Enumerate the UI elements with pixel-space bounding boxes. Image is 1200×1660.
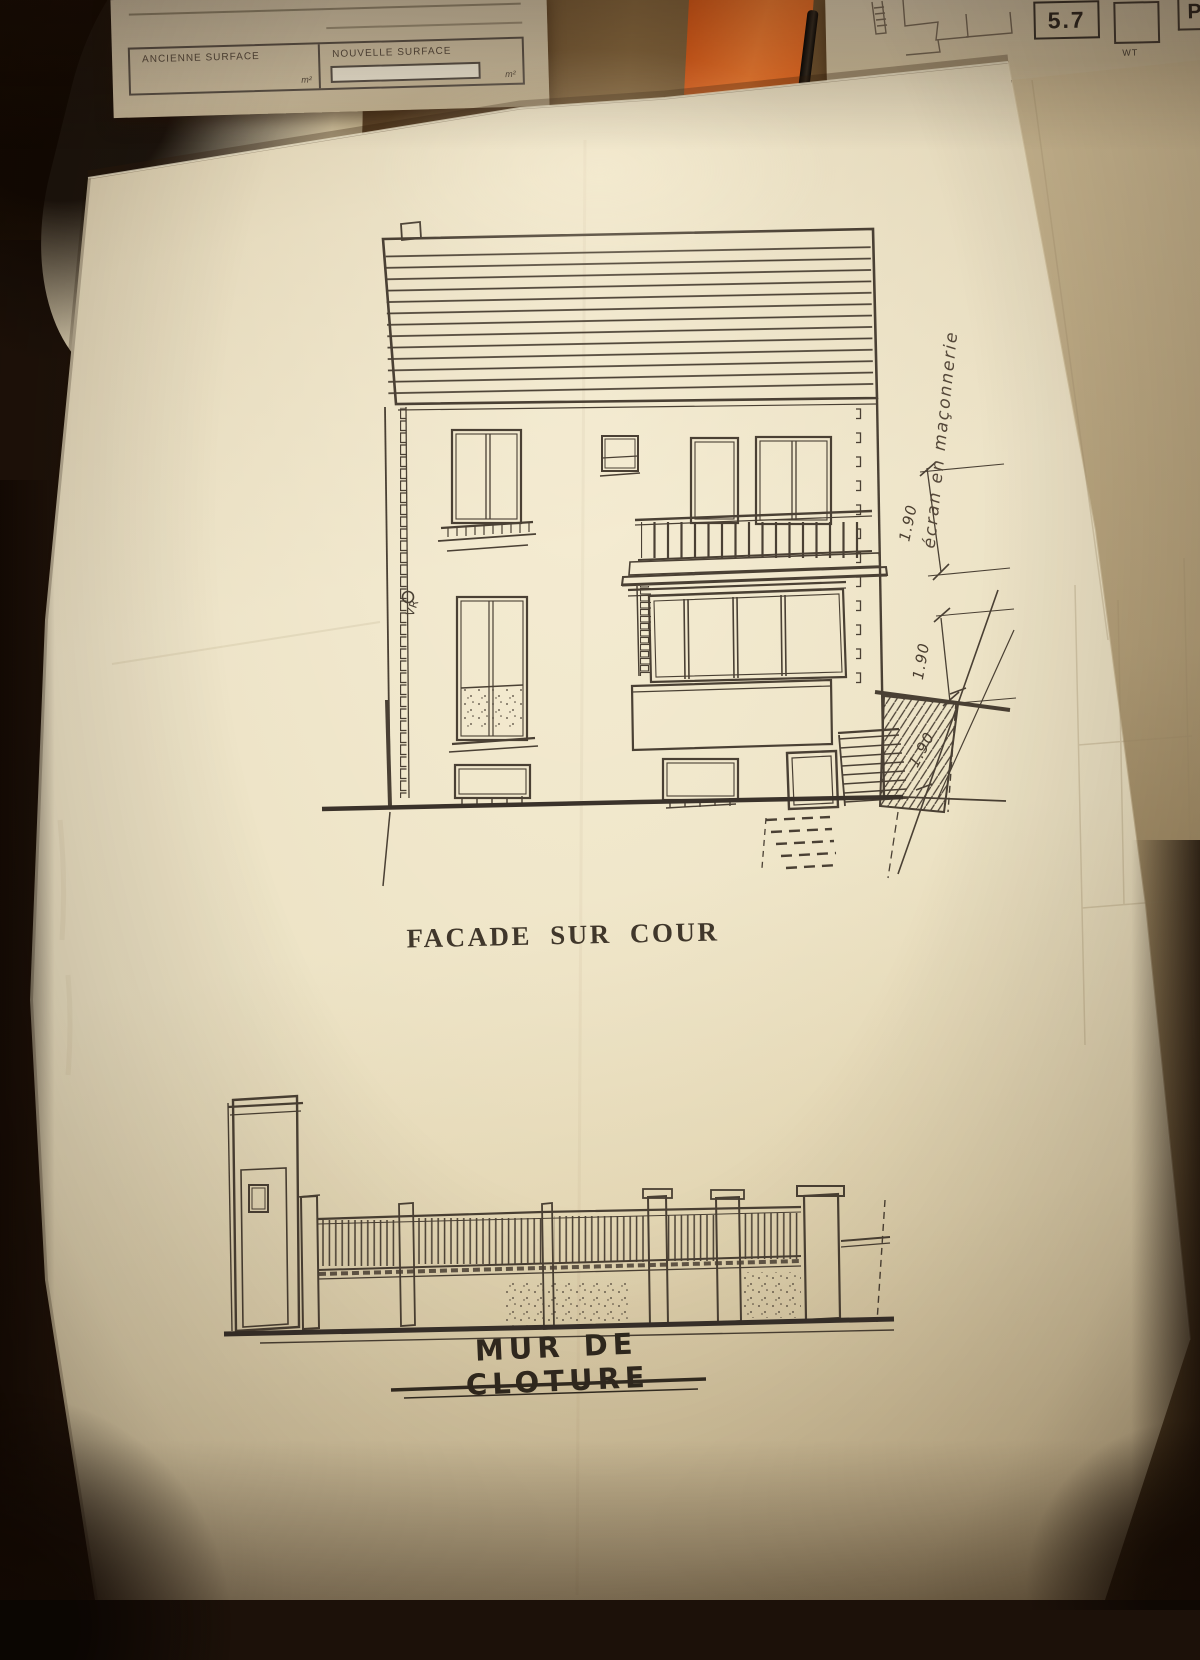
balcony (622, 511, 887, 585)
window-ground-left (449, 597, 538, 752)
dim-mid: 1.90 (909, 641, 933, 681)
facade-drawing (322, 222, 1016, 886)
roof-stripes (386, 238, 874, 399)
window-upper-right-2 (756, 437, 831, 524)
window-small-center (600, 436, 640, 476)
dim-upper: 1.90 (895, 503, 920, 543)
window-upper-right-1 (691, 438, 738, 523)
masonry-screen-wall (875, 590, 1014, 878)
gate-pillar (228, 1096, 303, 1331)
veranda-glazing (628, 582, 846, 682)
fence-railing (318, 1207, 801, 1279)
fence-low-wall (505, 1272, 801, 1326)
masonry-note: écran en maçonnerie (920, 330, 963, 550)
window-upper-left (438, 430, 536, 551)
ghost-plan-lines (1032, 80, 1194, 1045)
spandrel-panel (632, 680, 832, 750)
cellar-stair-dashes (766, 817, 838, 868)
photo-of-architectural-drawing: ANCIENNE SURFACE m² NOUVELLE SURFACE m² … (0, 0, 1200, 1600)
cellar-window-left (455, 765, 530, 806)
fence-right-end (841, 1200, 890, 1322)
plan-sketch-fragment (872, 0, 1012, 55)
